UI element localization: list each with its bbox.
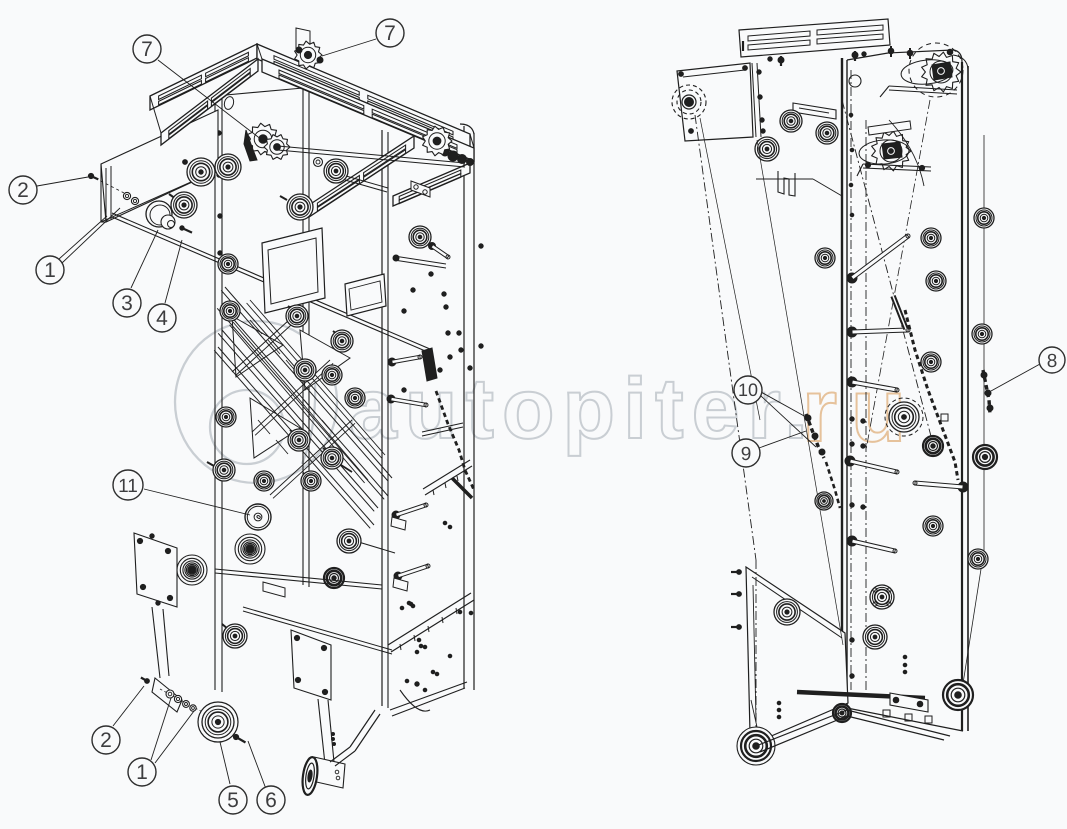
- svg-text:3: 3: [121, 292, 133, 315]
- svg-text:4: 4: [156, 307, 168, 330]
- svg-text:7: 7: [384, 22, 396, 45]
- svg-text:2: 2: [17, 179, 29, 202]
- svg-text:8: 8: [1047, 351, 1058, 372]
- svg-text:6: 6: [265, 789, 277, 812]
- svg-text:9: 9: [741, 444, 752, 465]
- svg-text:7: 7: [141, 38, 153, 61]
- svg-text:1: 1: [136, 761, 148, 784]
- svg-text:10: 10: [738, 380, 758, 400]
- svg-text:1: 1: [44, 259, 56, 282]
- svg-text:11: 11: [118, 476, 138, 497]
- svg-text:2: 2: [100, 729, 112, 752]
- svg-text:5: 5: [227, 789, 239, 812]
